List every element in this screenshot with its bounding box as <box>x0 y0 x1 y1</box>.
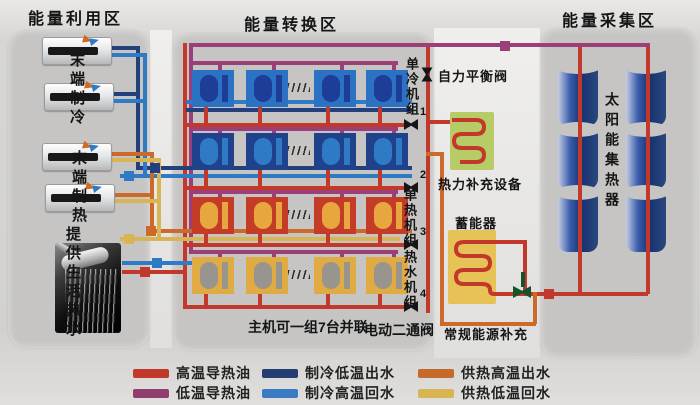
machine-unit <box>314 133 356 170</box>
pipe <box>340 190 344 197</box>
parallel-note: 主机可一组7台并联 <box>248 317 368 337</box>
legend-label: 供热低温回水 <box>461 383 551 403</box>
pipe <box>426 43 430 313</box>
domestic-hot-water-label: 提供生活热水 <box>62 226 83 340</box>
pipe <box>326 170 330 186</box>
pipe <box>120 174 412 178</box>
pipe <box>218 61 222 70</box>
hot-water-units-label: 热水机组 <box>400 250 419 310</box>
thermal-supplement-equipment <box>450 112 494 170</box>
legend-swatch <box>262 369 298 378</box>
pipe <box>258 170 262 186</box>
legend-swatch <box>418 389 454 398</box>
pipe <box>204 234 208 243</box>
conventional-energy-label: 常规能源补充 <box>444 324 528 343</box>
pipe <box>272 190 276 197</box>
pipe <box>110 199 161 203</box>
legend-item: 制冷低温出水 <box>262 363 395 383</box>
machine-unit <box>192 257 234 294</box>
machine-unit <box>192 70 234 107</box>
machine-unit <box>314 197 356 234</box>
cool-air-arrow-icon <box>89 142 100 152</box>
pipe <box>340 61 344 70</box>
pipe <box>258 234 262 243</box>
balance-valve-label: 自力平衡阀 <box>438 66 508 85</box>
pipe <box>326 294 330 305</box>
pipe <box>272 250 276 257</box>
pipe <box>392 250 396 257</box>
storage-coil-icon <box>450 230 496 304</box>
terminal-cooling-label: 末端制冷 <box>66 52 87 128</box>
flow-arrow-icon <box>150 163 160 173</box>
pipe <box>204 294 208 305</box>
pipe <box>112 99 147 103</box>
pipe <box>494 240 525 244</box>
legend-swatch <box>262 389 298 398</box>
heating-units-label: 单热机组 <box>400 188 419 248</box>
pipe <box>112 92 140 96</box>
machine-unit <box>366 133 408 170</box>
pipe <box>378 107 382 123</box>
pipe <box>122 270 185 274</box>
pipe <box>272 61 276 70</box>
legend-label: 低温导热油 <box>176 383 251 403</box>
flow-arrow-icon <box>544 289 554 299</box>
legend-label: 制冷低温出水 <box>305 363 395 383</box>
pipe <box>521 272 525 287</box>
pipe <box>258 294 262 305</box>
utilization-zone-title: 能量利用区 <box>28 5 123 29</box>
valve-number-3: 3 <box>420 226 426 238</box>
pipe <box>136 46 140 168</box>
pipe <box>110 53 147 57</box>
legend-item: 供热高温出水 <box>418 363 551 383</box>
pipe <box>392 190 396 197</box>
solar-collector-label: 太阳能集热器 <box>602 92 622 212</box>
legend-item: 制冷高温回水 <box>262 383 395 403</box>
legend-swatch <box>133 389 169 398</box>
pipe <box>258 107 262 123</box>
accumulator-equipment <box>448 230 496 304</box>
pipe <box>108 158 161 162</box>
pipe <box>392 61 396 70</box>
cool-air-arrow-icon <box>91 82 102 92</box>
flow-arrow-icon <box>152 258 162 268</box>
pipe <box>110 193 154 197</box>
pipe <box>578 45 582 294</box>
flow-arrow-icon <box>124 234 134 244</box>
cooling-units-label: 单冷机组 <box>402 57 421 117</box>
pipe <box>533 292 537 324</box>
machine-unit <box>246 133 288 170</box>
cool-air-arrow-icon <box>89 36 100 46</box>
machine-unit <box>314 70 356 107</box>
flow-arrow-icon <box>146 226 156 236</box>
pipe <box>110 46 140 50</box>
motor-valve-label: 电动二通阀 <box>364 320 434 340</box>
pipe <box>189 43 650 47</box>
pipe <box>218 190 222 197</box>
pipe <box>326 234 330 243</box>
pipe <box>204 170 208 186</box>
legend-label: 供热高温出水 <box>461 363 551 383</box>
legend-swatch <box>418 369 454 378</box>
legend-item: 低温导热油 <box>133 383 251 403</box>
pipe <box>646 45 650 294</box>
thermal-supplement-label: 热力补充设备 <box>438 174 522 193</box>
legend-item: 供热低温回水 <box>418 383 551 403</box>
machine-unit <box>314 257 356 294</box>
pipe <box>378 170 382 186</box>
pipe <box>204 107 208 123</box>
flow-arrow-icon <box>124 171 134 181</box>
pipe <box>183 305 410 309</box>
pipe <box>218 250 222 257</box>
pipe <box>340 250 344 257</box>
valve-number-2: 2 <box>420 169 426 181</box>
legend-item: 高温导热油 <box>133 363 251 383</box>
pipe <box>378 294 382 305</box>
machine-unit <box>246 197 288 234</box>
more-units-ellipsis <box>288 270 310 279</box>
conversion-zone-title: 能量转换区 <box>244 11 339 35</box>
pipe <box>326 107 330 123</box>
machine-unit <box>192 133 234 170</box>
machine-unit <box>192 197 234 234</box>
legend-label: 高温导热油 <box>176 363 251 383</box>
cool-air-arrow-icon <box>92 183 103 193</box>
valve-number-4: 4 <box>420 288 426 300</box>
machine-unit <box>246 257 288 294</box>
legend-label: 制冷高温回水 <box>305 383 395 403</box>
pipe <box>108 152 154 156</box>
solar-hvac-diagram: 能量利用区 能量转换区 能量采集区 末端制冷 末端制热 提供生活热水 单冷机组 … <box>0 0 700 405</box>
flow-arrow-icon <box>500 41 510 51</box>
valve-number-1: 1 <box>420 106 426 118</box>
pipe <box>183 243 410 247</box>
flow-arrow-icon <box>140 267 150 277</box>
more-units-ellipsis <box>288 146 310 155</box>
terminal-heating-label: 末端制热 <box>68 150 89 226</box>
more-units-ellipsis <box>288 210 310 219</box>
machine-unit <box>246 70 288 107</box>
legend-swatch <box>133 369 169 378</box>
collection-zone-title: 能量采集区 <box>562 7 657 31</box>
more-units-ellipsis <box>288 83 310 92</box>
heating-coil-icon <box>452 112 492 170</box>
pipe <box>378 234 382 243</box>
accumulator-label: 蓄能器 <box>455 213 497 232</box>
